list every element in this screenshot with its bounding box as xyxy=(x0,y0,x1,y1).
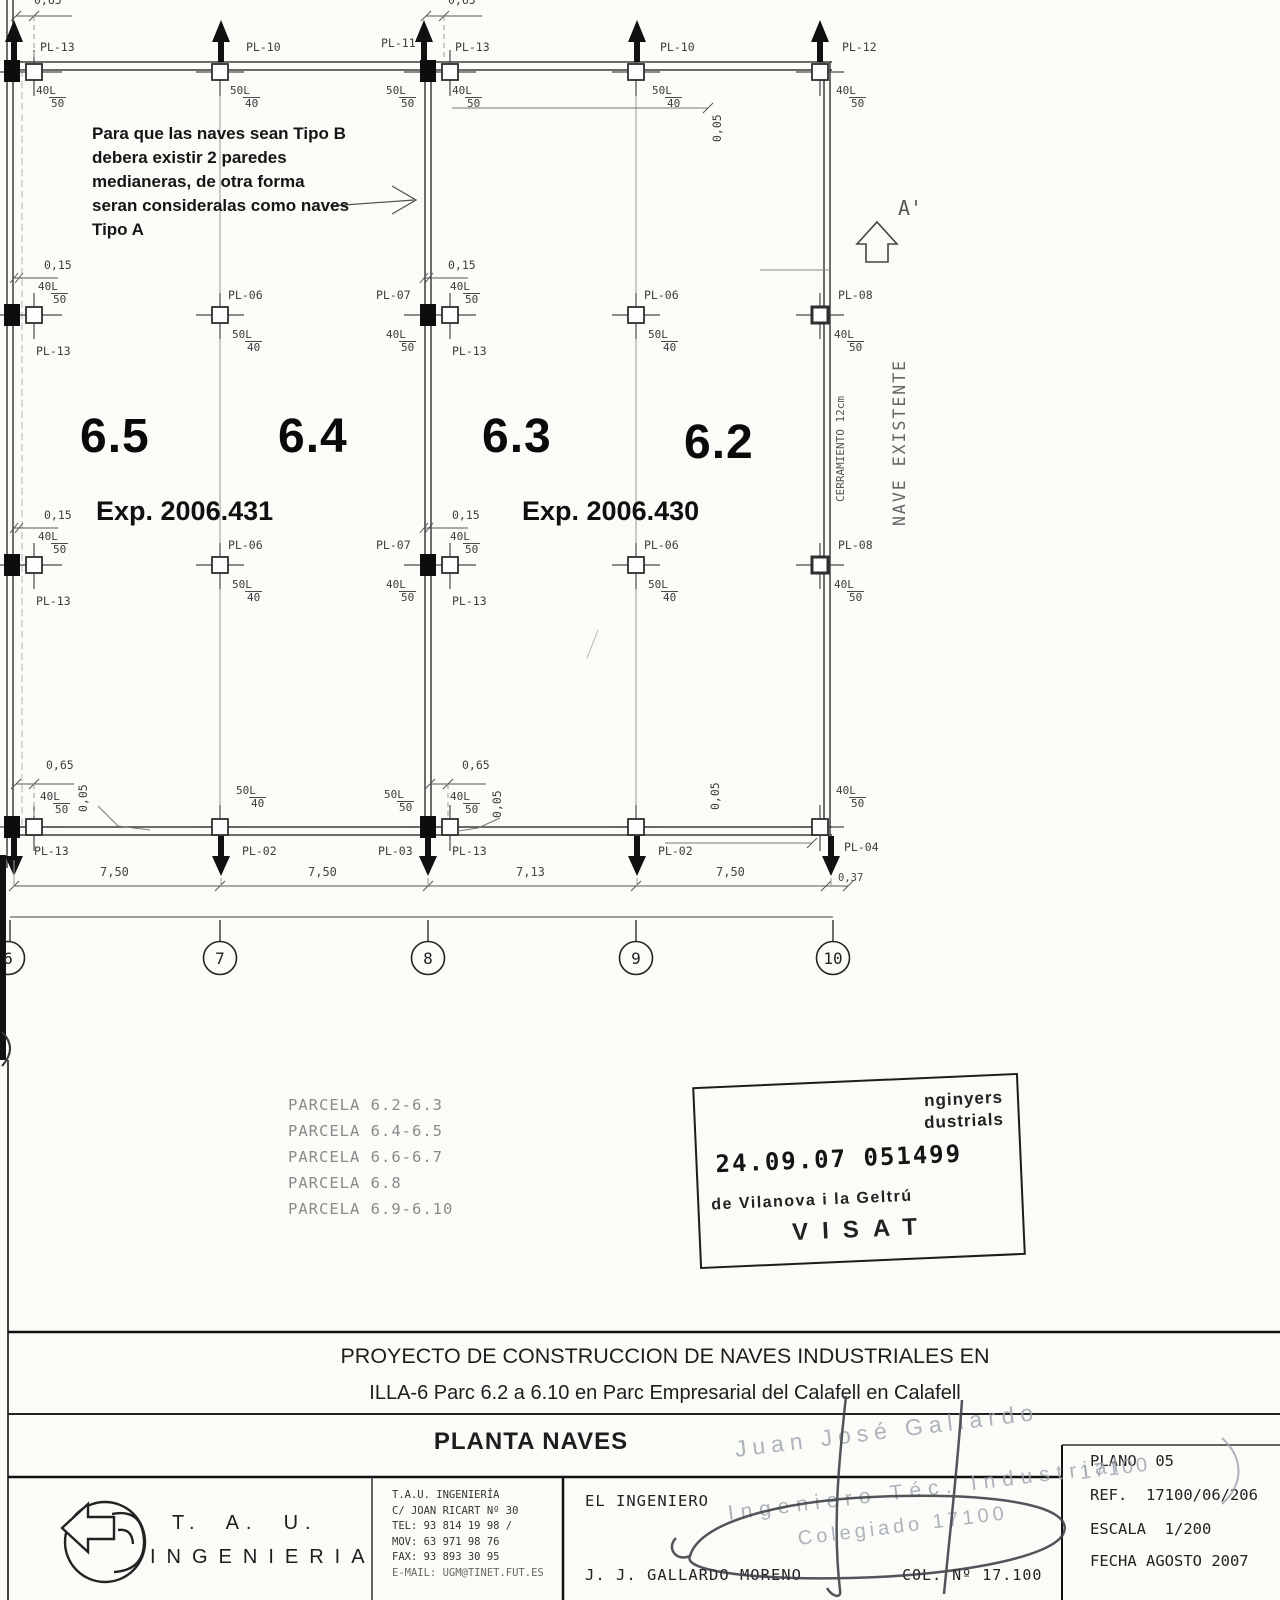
column-size-label: 40L50 xyxy=(386,330,416,353)
size-numerator: 40L xyxy=(452,86,482,97)
visat-stamp: nginyers dustrials 24.09.07 051499 de Vi… xyxy=(692,1073,1026,1269)
column-size-label: 40L50 xyxy=(36,86,66,109)
column-size-label: 50L40 xyxy=(648,330,678,353)
escala: ESCALA 1/200 xyxy=(1090,1520,1211,1538)
size-numerator: 40L xyxy=(836,786,866,797)
size-numerator: 40L xyxy=(834,580,864,591)
size-denominator: 50 xyxy=(463,543,480,556)
size-denominator: 50 xyxy=(49,97,66,110)
dim-label: 0,65 xyxy=(462,760,490,771)
column-size-label: 50L50 xyxy=(384,790,414,813)
parcela-item: PARCELA 6.6-6.7 xyxy=(288,1144,453,1170)
fecha: FECHA AGOSTO 2007 xyxy=(1090,1552,1249,1570)
parcela-item: PARCELA 6.8 xyxy=(288,1170,453,1196)
ref-number: REF. 17100/06/206 xyxy=(1090,1486,1258,1504)
size-numerator: 50L xyxy=(384,790,414,801)
column-size-label: 50L40 xyxy=(232,330,262,353)
parcela-item: PARCELA 6.9-6.10 xyxy=(288,1196,453,1222)
size-numerator: 40L xyxy=(38,282,68,293)
pile-label: PL-13 xyxy=(40,42,75,53)
column-size-label: 40L50 xyxy=(834,580,864,603)
note-line: medianeras, de otra forma xyxy=(92,170,349,194)
dim-label: 0,15 xyxy=(448,260,476,271)
pile-label: PL-02 xyxy=(658,846,693,857)
size-denominator: 50 xyxy=(51,293,68,306)
company-info-line: MOV: 63 971 98 76 xyxy=(392,1535,544,1551)
size-numerator: 50L xyxy=(648,580,678,591)
size-denominator: 40 xyxy=(661,591,678,604)
company-info: T.A.U. INGENIERÍA C/ JOAN RICART Nº 30 T… xyxy=(392,1488,544,1581)
column-size-label: 40L50 xyxy=(386,580,416,603)
dim-label: 0,05 xyxy=(712,96,723,142)
note-line: Para que las naves sean Tipo B xyxy=(92,122,349,146)
bay-dimension: 7,13 xyxy=(516,866,545,878)
size-numerator: 50L xyxy=(236,786,266,797)
unit-number: 6.4 xyxy=(278,412,348,462)
stamp-city: de Vilanova i la Geltrú xyxy=(711,1188,913,1215)
dim-label: 0,15 xyxy=(44,510,72,521)
dim-label: 0,65 xyxy=(34,0,62,6)
column-size-label: 40L50 xyxy=(450,792,480,815)
column-size-label: 40L50 xyxy=(836,786,866,809)
engineer-name: J. J. GALLARDO MORENO xyxy=(585,1566,802,1584)
size-denominator: 50 xyxy=(399,591,416,604)
size-numerator: 40L xyxy=(450,282,480,293)
pile-label: PL-13 xyxy=(452,846,487,857)
pile-label: PL-02 xyxy=(242,846,277,857)
pile-label: PL-13 xyxy=(455,42,490,53)
size-numerator: 50L xyxy=(652,86,682,97)
size-numerator: 40L xyxy=(450,532,480,543)
size-denominator: 50 xyxy=(849,97,866,110)
size-numerator: 40L xyxy=(386,330,416,341)
size-numerator: 50L xyxy=(232,580,262,591)
company-info-line: T.A.U. INGENIERÍA xyxy=(392,1488,544,1504)
pile-label: PL-06 xyxy=(644,540,679,551)
bay-dimension: 7,50 xyxy=(308,866,337,878)
size-numerator: 50L xyxy=(648,330,678,341)
size-denominator: 50 xyxy=(399,341,416,354)
stamp-text: dustrials xyxy=(924,1110,1005,1133)
dim-label: 0,05 xyxy=(710,766,721,810)
size-numerator: 50L xyxy=(386,86,416,97)
parcela-list: PARCELA 6.2-6.3 PARCELA 6.4-6.5 PARCELA … xyxy=(288,1092,453,1222)
company-info-line: C/ JOAN RICART Nº 30 xyxy=(392,1504,544,1520)
dim-label: 0,05 xyxy=(492,778,503,818)
note-line: Tipo A xyxy=(92,218,349,242)
parcela-item: PARCELA 6.2-6.3 xyxy=(288,1092,453,1118)
bay-dimension: 7,50 xyxy=(716,866,745,878)
pile-label: PL-13 xyxy=(452,596,487,607)
pile-label: PL-10 xyxy=(246,42,281,53)
size-numerator: 50L xyxy=(230,86,260,97)
company-name-line1: T. A. U. xyxy=(172,1512,318,1535)
pile-label: PL-11 xyxy=(381,38,416,49)
company-info-line: TEL: 93 814 19 98 / xyxy=(392,1519,544,1535)
parcela-item: PARCELA 6.4-6.5 xyxy=(288,1118,453,1144)
size-denominator: 50 xyxy=(849,797,866,810)
project-title-line1: PROYECTO DE CONSTRUCCION DE NAVES INDUST… xyxy=(60,1344,1270,1369)
column-size-label: 40L50 xyxy=(450,532,480,555)
column-size-label: 40L50 xyxy=(38,532,68,555)
tau-logo-icon xyxy=(62,1502,145,1582)
pile-label: PL-08 xyxy=(838,290,873,301)
pile-label: PL-13 xyxy=(452,346,487,357)
grid-bubble-10: 10 xyxy=(816,949,850,968)
column-size-label: 50L40 xyxy=(232,580,262,603)
bay-dimension: 0,37 xyxy=(838,872,863,884)
column-size-label: 50L40 xyxy=(652,86,682,109)
column-size-label: 40L50 xyxy=(450,282,480,305)
company-info-line: FAX: 93 893 30 95 xyxy=(392,1550,544,1566)
note-line: seran consideralas como naves xyxy=(92,194,349,218)
column-size-label: 40L50 xyxy=(834,330,864,353)
size-numerator: 40L xyxy=(450,792,480,803)
column-size-label: 40L50 xyxy=(40,792,70,815)
pile-label: PL-03 xyxy=(378,846,413,857)
grid-bubble-7: 7 xyxy=(203,949,237,968)
grid-bubble-8: 8 xyxy=(411,949,445,968)
pile-label: PL-06 xyxy=(228,540,263,551)
stamp-text: nginyers xyxy=(924,1088,1004,1111)
pile-label: PL-07 xyxy=(376,540,411,551)
section-arrow-icon xyxy=(857,222,897,262)
scanned-drawing-sheet: 0,65 0,65 PL-13 PL-10 PL-11 PL-13 PL-10 … xyxy=(0,0,1280,1600)
pile-label: PL-13 xyxy=(36,596,71,607)
column-size-label: 50L50 xyxy=(386,86,416,109)
unit-number: 6.5 xyxy=(80,412,150,462)
pile-label: PL-04 xyxy=(844,842,879,853)
pile-label: PL-06 xyxy=(228,290,263,301)
size-denominator: 40 xyxy=(245,591,262,604)
size-denominator: 40 xyxy=(665,97,682,110)
bay-dimension: 7,50 xyxy=(100,866,129,878)
size-denominator: 50 xyxy=(847,341,864,354)
cerramiento-label: CERRAMIENTO 12cm xyxy=(834,372,847,502)
dim-label: 0,65 xyxy=(46,760,74,771)
dim-label: 0,05 xyxy=(78,772,89,812)
stamp-number: 24.09.07 051499 xyxy=(715,1140,963,1179)
column-size-label: 40L50 xyxy=(836,86,866,109)
collegiate-number: COL. Nº 17.100 xyxy=(902,1566,1042,1584)
expediente-label: Exp. 2006.431 xyxy=(96,496,273,526)
size-denominator: 40 xyxy=(661,341,678,354)
dim-label: 0,15 xyxy=(452,510,480,521)
size-denominator: 50 xyxy=(463,803,480,816)
size-denominator: 40 xyxy=(243,97,260,110)
expediente-label: Exp. 2006.430 xyxy=(522,496,699,526)
unit-number: 6.3 xyxy=(482,412,552,462)
size-denominator: 40 xyxy=(245,341,262,354)
dim-label: 0,15 xyxy=(44,260,72,271)
size-denominator: 50 xyxy=(463,293,480,306)
dim-label: 0,65 xyxy=(448,0,476,6)
size-denominator: 40 xyxy=(249,797,266,810)
column-size-label: 50L40 xyxy=(230,86,260,109)
nave-existente-label: NAVE EXISTENTE xyxy=(890,356,909,526)
column-size-label: 50L40 xyxy=(236,786,266,809)
size-numerator: 40L xyxy=(38,532,68,543)
project-title-line2: ILLA-6 Parc 6.2 a 6.10 en Parc Empresari… xyxy=(60,1382,1270,1405)
tipo-b-note: Para que las naves sean Tipo B debera ex… xyxy=(92,122,349,242)
pile-label: PL-13 xyxy=(36,346,71,357)
size-numerator: 40L xyxy=(40,792,70,803)
size-numerator: 40L xyxy=(836,86,866,97)
column-size-label: 40L50 xyxy=(38,282,68,305)
column-size-label: 50L40 xyxy=(648,580,678,603)
unit-number: 6.2 xyxy=(684,418,754,468)
size-denominator: 50 xyxy=(51,543,68,556)
size-denominator: 50 xyxy=(397,801,414,814)
column-size-label: 40L50 xyxy=(452,86,482,109)
size-denominator: 50 xyxy=(399,97,416,110)
pile-label: PL-10 xyxy=(660,42,695,53)
pile-label: PL-12 xyxy=(842,42,877,53)
stamp-visat-label: VISAT xyxy=(700,1209,1023,1251)
size-denominator: 50 xyxy=(465,97,482,110)
size-numerator: 40L xyxy=(386,580,416,591)
size-numerator: 50L xyxy=(232,330,262,341)
company-info-line: E-MAIL: UGM@TINET.FUT.ES xyxy=(392,1566,544,1582)
engineer-label: EL INGENIERO xyxy=(585,1492,709,1510)
pile-label: PL-07 xyxy=(376,290,411,301)
grid-bubble-9: 9 xyxy=(619,949,653,968)
company-name-line2: INGENIERIA xyxy=(150,1546,376,1569)
size-denominator: 50 xyxy=(53,803,70,816)
pile-label: PL-08 xyxy=(838,540,873,551)
size-denominator: 50 xyxy=(847,591,864,604)
note-line: debera existir 2 paredes xyxy=(92,146,349,170)
pile-label: PL-06 xyxy=(644,290,679,301)
size-numerator: 40L xyxy=(36,86,66,97)
grid-bubble-6: 6 xyxy=(0,949,25,968)
section-marker-label: A' xyxy=(898,196,922,220)
pile-label: PL-13 xyxy=(34,846,69,857)
size-numerator: 40L xyxy=(834,330,864,341)
